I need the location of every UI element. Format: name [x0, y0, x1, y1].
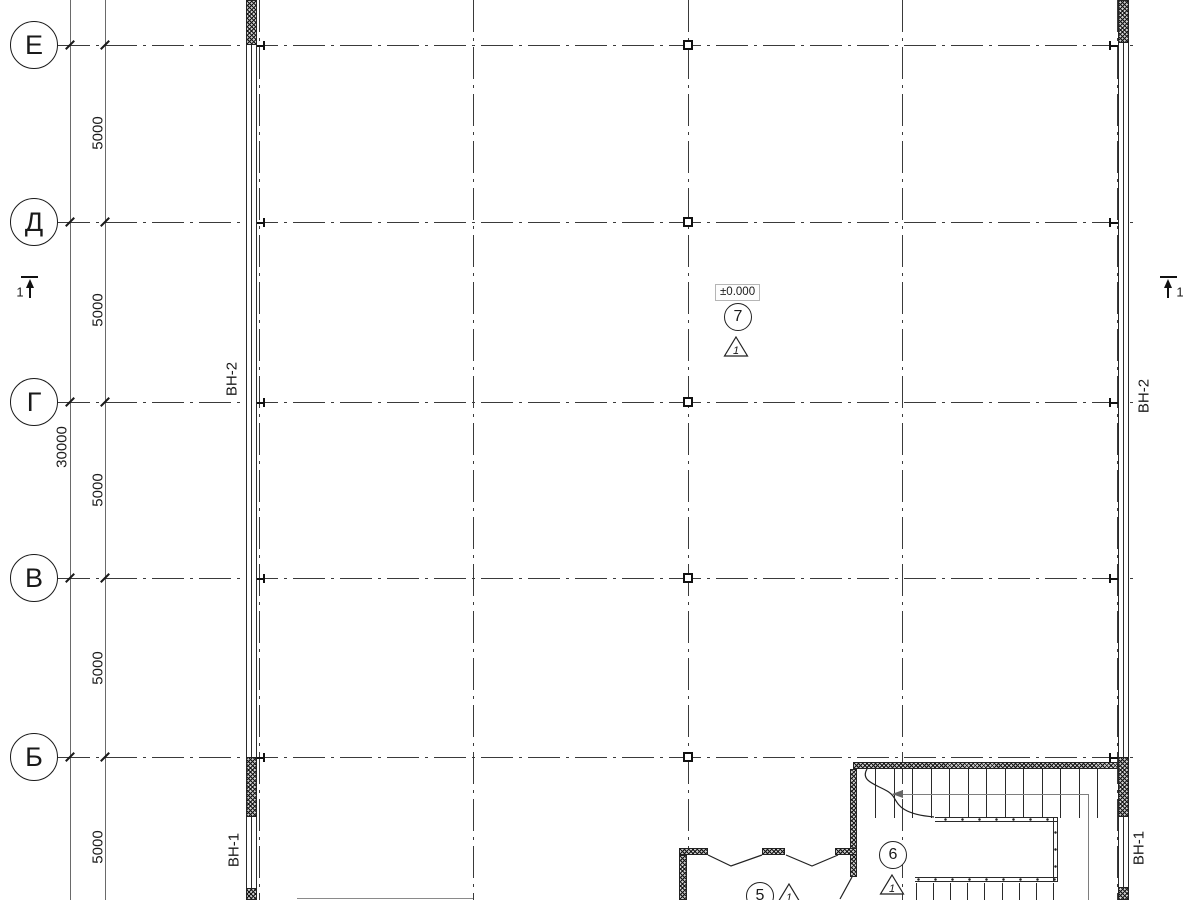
dimension-segment-label: 5000 [90, 651, 107, 684]
stair-tread-lower [916, 883, 917, 900]
wall-stub-c [835, 848, 857, 855]
detail-triangle-7-number: 1 [723, 345, 749, 357]
section-label-right: 1 [1176, 285, 1183, 300]
wall-stub-b [762, 848, 785, 855]
axis-line-Б [58, 757, 1135, 758]
dimension-segment-label: 5000 [90, 830, 107, 863]
wall-right-pier-1 [1118, 0, 1129, 43]
wall-right-pier-3 [1118, 887, 1129, 900]
stair-tread-lower [1053, 883, 1054, 900]
room-circle-7: 7 [724, 303, 752, 331]
stair-tread-lower [1002, 883, 1003, 900]
wall-left-pier-1 [246, 0, 257, 45]
bottom-edge-wall-line [297, 898, 473, 899]
detail-triangle-5: 1 [776, 883, 802, 900]
stair-tread-lower [1019, 883, 1020, 900]
wall-right-window-2 [1118, 817, 1129, 887]
room-circle-6: 6 [879, 841, 907, 869]
dimension-segment-label: 5000 [90, 293, 107, 326]
wall-mark-vn1-right: ВН-1 [1131, 831, 1148, 865]
axis-bubble-Е: Е [10, 21, 58, 69]
column-marker [683, 752, 693, 762]
grid-line-vertical-2 [473, 0, 474, 900]
stair-direction-line [893, 794, 1089, 795]
section-arrow-up-icon-right [1164, 279, 1172, 288]
column-marker [683, 397, 693, 407]
section-mark-left-bar [21, 276, 38, 278]
detail-triangle-5-number: 1 [776, 892, 802, 900]
axis-line-Е [58, 45, 1135, 46]
wall-left-window-1 [246, 45, 257, 757]
column-marker [683, 573, 693, 583]
level-mark: ±0.000 [715, 284, 760, 301]
stair-tread-upper [875, 769, 876, 818]
stair-tread-lower [967, 883, 968, 900]
axis-line-Г [58, 402, 1135, 403]
section-arrow-up-icon-left [26, 279, 34, 288]
detail-triangle-7: 1 [723, 336, 749, 357]
stair-tread-upper [1097, 769, 1098, 818]
stair-left-wall [850, 769, 857, 877]
detail-triangle-6: 1 [879, 874, 905, 895]
stair-tread-lower [950, 883, 951, 900]
axis-bubble-В: В [10, 554, 58, 602]
wall-right-pier-2 [1118, 757, 1129, 817]
axis-bubble-Г: Г [10, 378, 58, 426]
dimension-segment-label: 5000 [90, 473, 107, 506]
wall-stub-a-return [679, 855, 687, 900]
dimension-segment-label: 5000 [90, 116, 107, 149]
opening-zigzag-right [786, 855, 838, 866]
grid-line-vertical-3 [688, 0, 689, 848]
axis-line-Д [58, 222, 1135, 223]
wall-left-pier-3 [246, 888, 257, 900]
stair-tread-lower [1036, 883, 1037, 900]
stair-direction-arrow-icon [892, 790, 903, 798]
wall-mark-vn2-left: ВН-2 [224, 362, 241, 396]
column-marker [683, 217, 693, 227]
column-marker [683, 40, 693, 50]
section-mark-right-bar [1160, 276, 1177, 278]
section-label-left: 1 [16, 285, 23, 300]
stair-tread-lower [984, 883, 985, 900]
door-leaf-line [840, 877, 852, 899]
axis-line-В [58, 578, 1135, 579]
axis-bubble-Д: Д [10, 198, 58, 246]
stair-railing-top [935, 817, 1058, 822]
stair-tread-lower [933, 883, 934, 900]
axis-bubble-Б: Б [10, 733, 58, 781]
wall-right-window-1 [1118, 43, 1129, 757]
grid-line-vertical-1 [259, 0, 260, 900]
floor-plan-canvas: ЕДГВБ 50005000500050005000 30000 ±0.000 … [0, 0, 1200, 900]
stair-direction-line-down [1088, 794, 1089, 900]
dimension-total-label: 30000 [54, 426, 71, 468]
wall-left-pier-2 [246, 757, 257, 817]
stair-railing-right [1053, 817, 1058, 882]
wall-mark-vn1-left: ВН-1 [226, 833, 243, 867]
stair-top-wall [853, 762, 1118, 769]
stair-railing-bottom [915, 877, 1058, 882]
opening-zigzag-left [708, 855, 762, 866]
room-circle-5: 5 [746, 882, 774, 900]
detail-triangle-6-number: 1 [879, 883, 905, 895]
wall-stub-a [679, 848, 708, 855]
wall-mark-vn2-right: ВН-2 [1136, 379, 1153, 413]
wall-left-window-2 [246, 817, 257, 888]
